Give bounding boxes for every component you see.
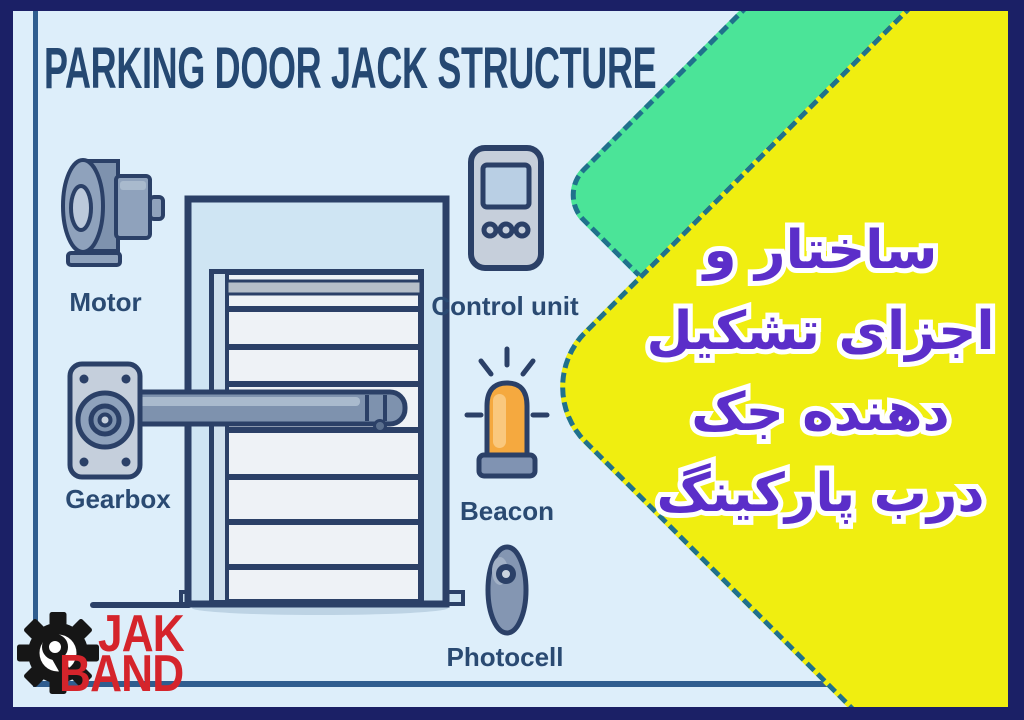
headline-line: اجزای تشکیل: [628, 291, 1008, 372]
headline-text-layer: ساختار و اجزای تشکیل دهنده جک درب پارکین…: [628, 210, 1008, 534]
headline-overlay: ساختار و اجزای تشکیل دهنده جک درب پارکین…: [628, 210, 1008, 550]
beacon-icon: [462, 342, 552, 482]
diagram-panel: PARKING DOOR JACK STRUCTURE: [13, 11, 1008, 707]
logo-text-bottom: BAND: [59, 648, 183, 700]
page-title: PARKING DOOR JACK STRUCTURE: [44, 39, 656, 99]
headline-line: دهنده جک: [628, 372, 1008, 453]
poster-canvas: PARKING DOOR JACK STRUCTURE: [0, 0, 1024, 720]
control-unit-label: Control unit: [405, 291, 605, 322]
photocell-label: Photocell: [405, 642, 605, 673]
beacon-label: Beacon: [407, 496, 607, 527]
control-unit-icon: [466, 143, 546, 273]
gearbox-icon: [62, 356, 412, 486]
gearbox-label: Gearbox: [33, 484, 203, 515]
photocell-icon: [482, 543, 532, 638]
motor-label: Motor: [18, 287, 193, 318]
headline-line: درب پارکینگ: [628, 453, 1008, 534]
panel-border-left: [33, 11, 38, 687]
headline-line: ساختار و: [628, 210, 1008, 291]
